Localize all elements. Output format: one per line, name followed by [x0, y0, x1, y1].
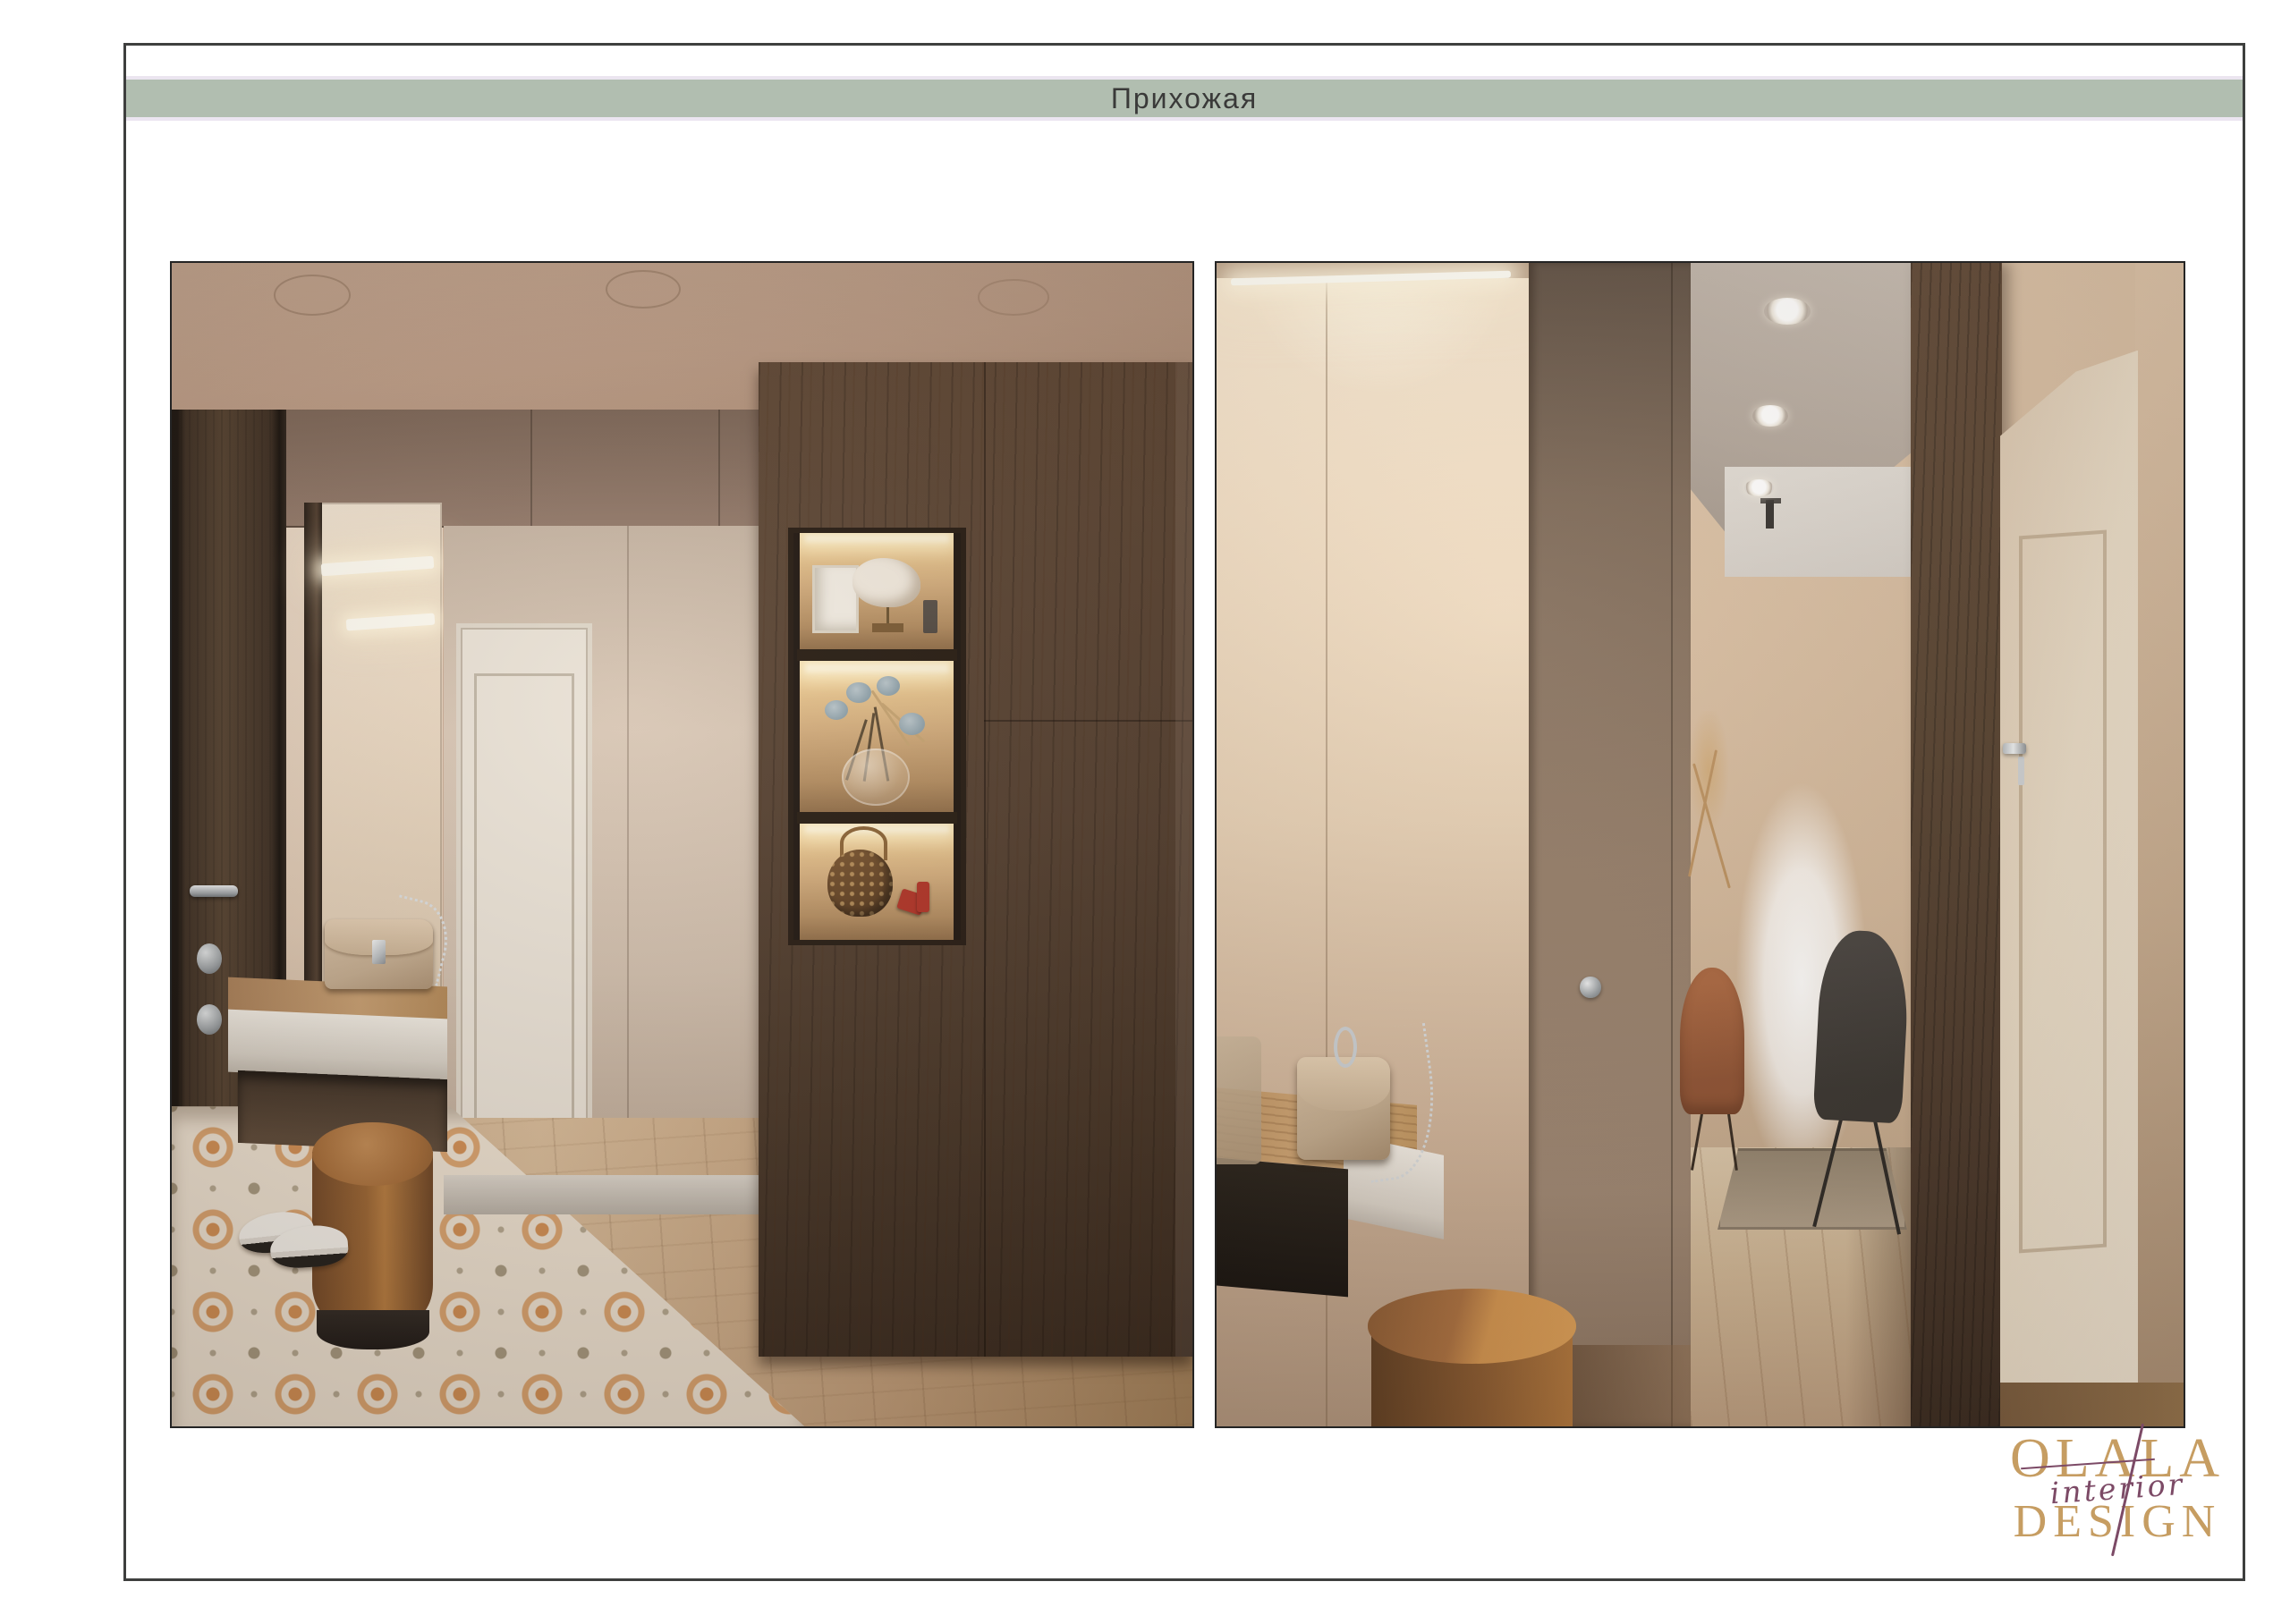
door-lock	[197, 943, 222, 974]
rust-chair	[1680, 968, 1744, 1114]
ceiling-spotlight-icon	[1744, 479, 1773, 497]
leather-pouf	[312, 1122, 433, 1185]
rug	[1717, 1148, 1907, 1230]
door-handle	[190, 885, 238, 897]
title-bar: Прихожая	[126, 76, 2243, 121]
panel-seam	[1671, 263, 1673, 1426]
pouf-base	[317, 1310, 429, 1349]
panel-seam	[984, 362, 986, 1357]
ceiling-spotlight-icon	[1752, 405, 1788, 427]
sculpture-base	[872, 623, 903, 632]
cream-door	[2000, 351, 2139, 1426]
led-strip-reflection	[320, 555, 434, 576]
track-light	[1766, 500, 1774, 528]
round-handbag	[827, 850, 892, 917]
niche-shelf-bottom	[800, 824, 954, 940]
page-title: Прихожая	[1111, 82, 1258, 115]
handbag	[325, 919, 433, 989]
walnut-panel-column	[1911, 263, 2002, 1426]
wardrobe-base-step	[444, 1175, 767, 1214]
white-door-reflection	[456, 623, 592, 1173]
panel-seam	[984, 720, 1192, 722]
floor-by-door	[2000, 1383, 2184, 1426]
perfume-bottle	[923, 600, 937, 632]
heart-sculpture	[852, 558, 920, 607]
studio-logo: OLALA interior DESIGN	[2002, 1431, 2233, 1576]
leather-pouf	[1368, 1289, 1576, 1363]
taupe-door-panel	[1529, 263, 1691, 1426]
rose-flower	[899, 713, 925, 735]
led-strip-reflection	[345, 613, 434, 631]
rose-flower	[825, 700, 848, 720]
door-molding	[2019, 530, 2107, 1254]
bag-hook	[1334, 1027, 1357, 1068]
rose-flower	[877, 676, 900, 696]
handle-rosette	[2018, 757, 2024, 784]
mirror-reflection-door	[304, 503, 322, 1020]
ceiling-light-icon	[274, 275, 351, 316]
ceiling-light-icon	[606, 270, 681, 309]
render-hallway-entry	[170, 261, 1194, 1428]
niche-shelf-top	[800, 533, 954, 649]
wood-shelf	[797, 649, 958, 662]
handbag	[1273, 1017, 1406, 1172]
glass-vase	[842, 749, 910, 806]
niche-shelf-middle	[800, 661, 954, 811]
perfume-bottle	[917, 882, 929, 912]
ceiling-light-icon	[978, 279, 1048, 315]
panel-edge	[1175, 362, 1192, 1357]
handbag-reflection	[1217, 1036, 1261, 1164]
framed-art	[812, 565, 859, 632]
mirror-seam	[627, 526, 629, 1210]
pampas-grass	[1677, 711, 1735, 920]
bag-clasp	[372, 940, 386, 964]
door-handle	[2003, 743, 2026, 754]
ceiling-spotlight-icon	[1764, 298, 1811, 325]
wood-shelf	[797, 812, 958, 825]
render-hallway-corridor	[1215, 261, 2185, 1428]
rose-flower	[846, 682, 871, 704]
display-niche	[793, 533, 961, 940]
wall-right	[2135, 263, 2184, 1426]
console-drawer	[1217, 1158, 1348, 1298]
